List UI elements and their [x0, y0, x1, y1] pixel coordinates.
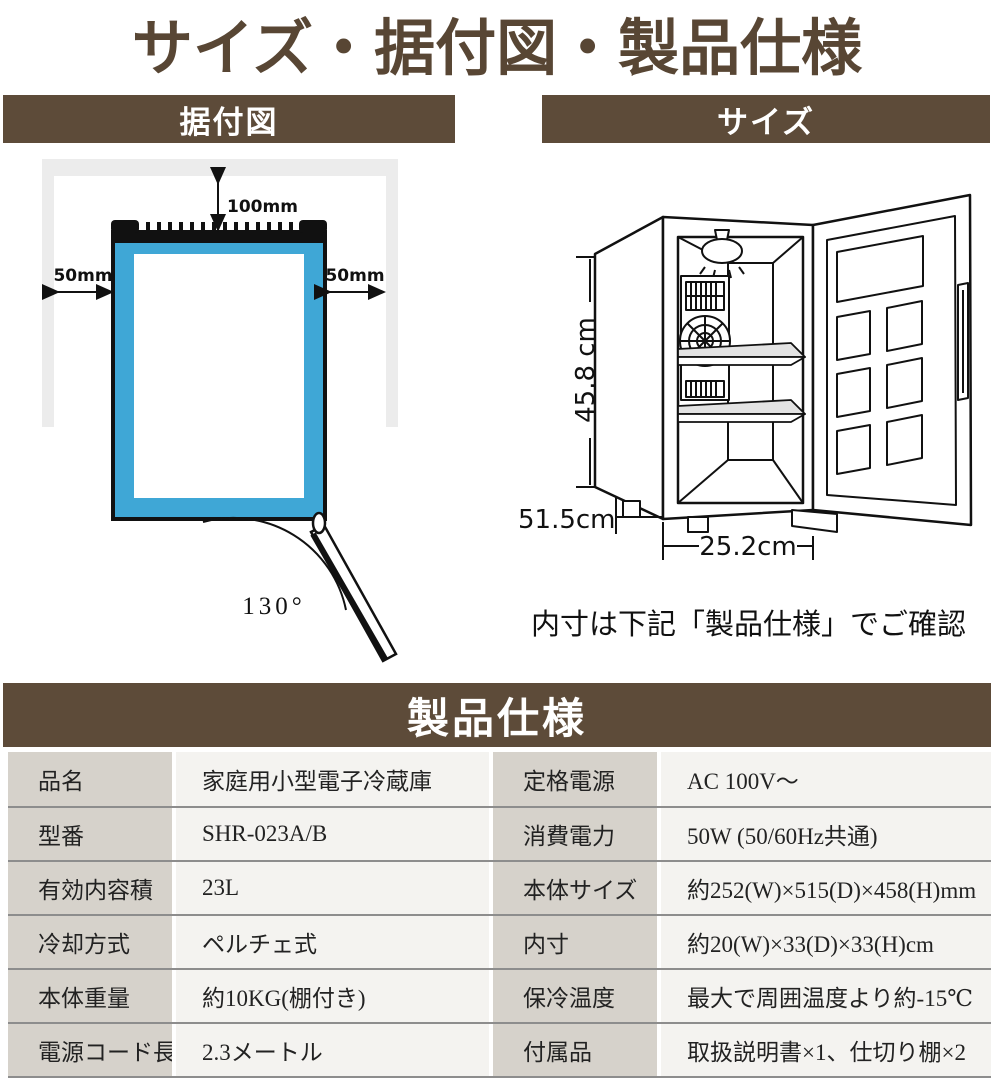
table-row: 電源コード長 2.3メートル 付属品 取扱説明書×1、仕切り棚×2: [8, 1022, 991, 1076]
clearance-label-right: 50mm: [325, 266, 384, 286]
depth-label: 51.5cm: [518, 505, 616, 535]
spec-label: 電源コード長: [8, 1024, 172, 1076]
installation-diagram: 100mm 50mm 50mm 130°: [0, 150, 460, 680]
cabinet-left-panel: [595, 217, 663, 519]
hinge-cap-left: [111, 220, 139, 233]
spec-value: 最大で周囲温度より約-15℃: [661, 970, 991, 1022]
spec-label: 本体重量: [8, 970, 172, 1022]
spec-value: SHR-023A/B: [176, 808, 489, 860]
spec-value: 約10KG(棚付き): [176, 970, 489, 1022]
door-handle: [958, 283, 968, 400]
table-row: 品名 家庭用小型電子冷蔵庫 定格電源 AC 100V～: [8, 752, 991, 806]
width-label: 25.2cm: [699, 532, 797, 562]
spec-section-label: 製品仕様: [407, 685, 587, 746]
door-hinge: [313, 513, 325, 533]
spec-value: 50W (50/60Hz共通): [661, 808, 991, 860]
spec-value: ペルチェ式: [176, 916, 489, 968]
spec-section-header: 製品仕様: [3, 683, 991, 747]
cooling-unit: [680, 276, 730, 400]
spec-label: 付属品: [493, 1024, 657, 1076]
fridge-door: [813, 195, 971, 525]
spec-value: 2.3メートル: [176, 1024, 489, 1076]
table-row: 有効内容積 23L 本体サイズ 約252(W)×515(D)×458(H)mm: [8, 860, 991, 914]
size-diagram: 45.8 cm: [515, 160, 994, 600]
door-swing: 130°: [203, 513, 396, 661]
size-section-header: サイズ: [542, 95, 990, 143]
clearance-label-left: 50mm: [53, 266, 112, 286]
open-door: [311, 525, 396, 661]
install-section-header: 据付図: [3, 95, 455, 143]
table-row: 本体重量 約10KG(棚付き) 保冷温度 最大で周囲温度より約-15℃: [8, 968, 991, 1022]
size-section-label: サイズ: [717, 97, 815, 142]
spec-label: 消費電力: [493, 808, 657, 860]
spec-value: 23L: [176, 862, 489, 914]
spec-label: 保冷温度: [493, 970, 657, 1022]
table-row: 型番 SHR-023A/B 消費電力 50W (50/60Hz共通): [8, 806, 991, 860]
spec-value: 約20(W)×33(D)×33(H)cm: [661, 916, 991, 968]
clearance-label-top: 100mm: [227, 197, 298, 217]
vent-teeth: [146, 222, 293, 231]
spec-label: 本体サイズ: [493, 862, 657, 914]
door-angle-label: 130°: [242, 593, 306, 620]
spec-value: 家庭用小型電子冷蔵庫: [176, 752, 489, 806]
page-title: サイズ・据付図・製品仕様: [0, 0, 994, 87]
spec-value: 取扱説明書×1、仕切り棚×2: [661, 1024, 991, 1076]
fridge-top-view: [111, 220, 327, 519]
inner-size-note: 内寸は下記「製品仕様」でご確認: [531, 601, 994, 643]
spec-label: 品名: [8, 752, 172, 806]
table-row: 冷却方式 ペルチェ式 内寸 約20(W)×33(D)×33(H)cm: [8, 914, 991, 968]
hinge-cap-right: [299, 220, 327, 233]
spec-value: AC 100V～: [661, 752, 991, 806]
fridge-cabinet: [595, 217, 837, 532]
spec-label: 内寸: [493, 916, 657, 968]
spec-label: 定格電源: [493, 752, 657, 806]
spec-label: 冷却方式: [8, 916, 172, 968]
spec-table: 品名 家庭用小型電子冷蔵庫 定格電源 AC 100V～ 型番 SHR-023A/…: [8, 752, 991, 1078]
product-spec-sheet: サイズ・据付図・製品仕様 据付図 サイズ: [0, 0, 994, 1080]
install-section-label: 据付図: [180, 97, 279, 142]
spec-value: 約252(W)×515(D)×458(H)mm: [661, 862, 991, 914]
spec-label: 有効内容積: [8, 862, 172, 914]
spec-label: 型番: [8, 808, 172, 860]
